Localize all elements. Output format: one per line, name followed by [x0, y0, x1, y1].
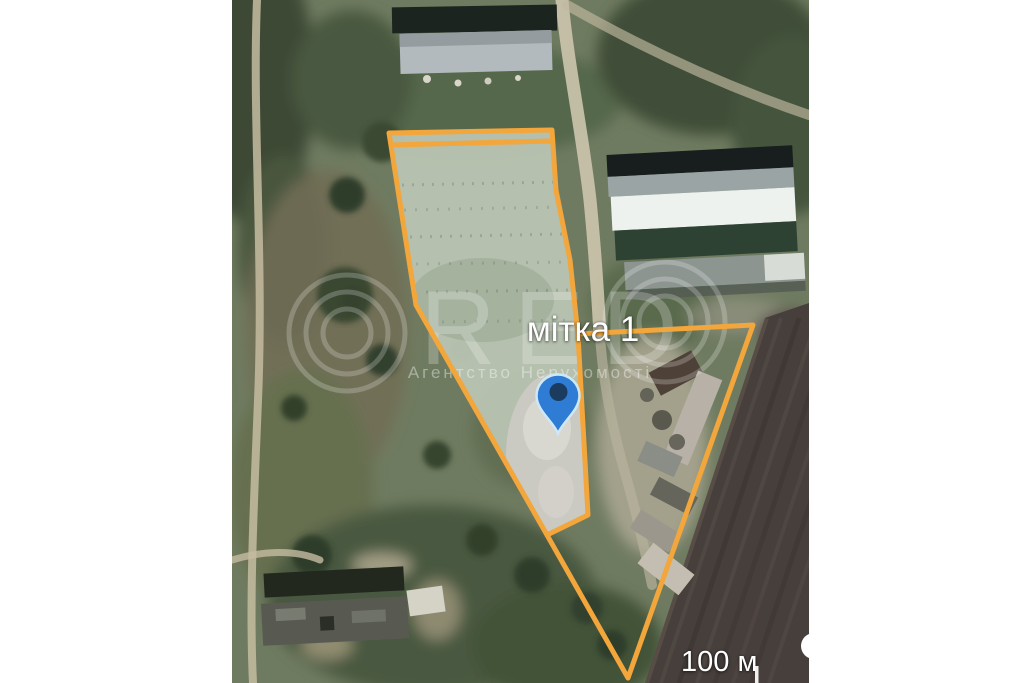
screenshot-root: RED Агентство Нерухомості мітка 1 100 м: [0, 0, 1024, 683]
marker-label: мітка 1: [527, 310, 640, 349]
letterbox-left: [0, 0, 232, 683]
watermark-subtitle: Агентство Нерухомості: [408, 363, 652, 382]
letterbox-right: [809, 0, 1024, 683]
satellite-map[interactable]: RED Агентство Нерухомості мітка 1 100 м: [232, 0, 809, 683]
scale-label: 100 м: [681, 646, 757, 678]
scale-bar-tick: [755, 666, 759, 683]
map-canvas: RED Агентство Нерухомості мітка 1 100 м: [232, 0, 809, 683]
